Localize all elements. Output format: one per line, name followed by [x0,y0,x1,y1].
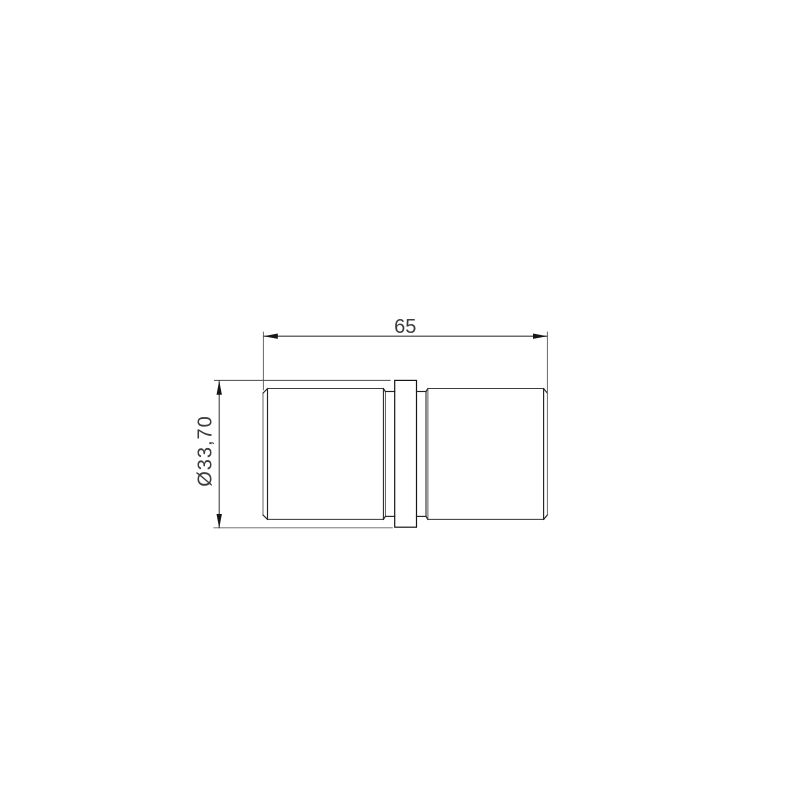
svg-text:Ø33,70: Ø33,70 [195,415,217,487]
svg-text:65: 65 [394,316,416,338]
